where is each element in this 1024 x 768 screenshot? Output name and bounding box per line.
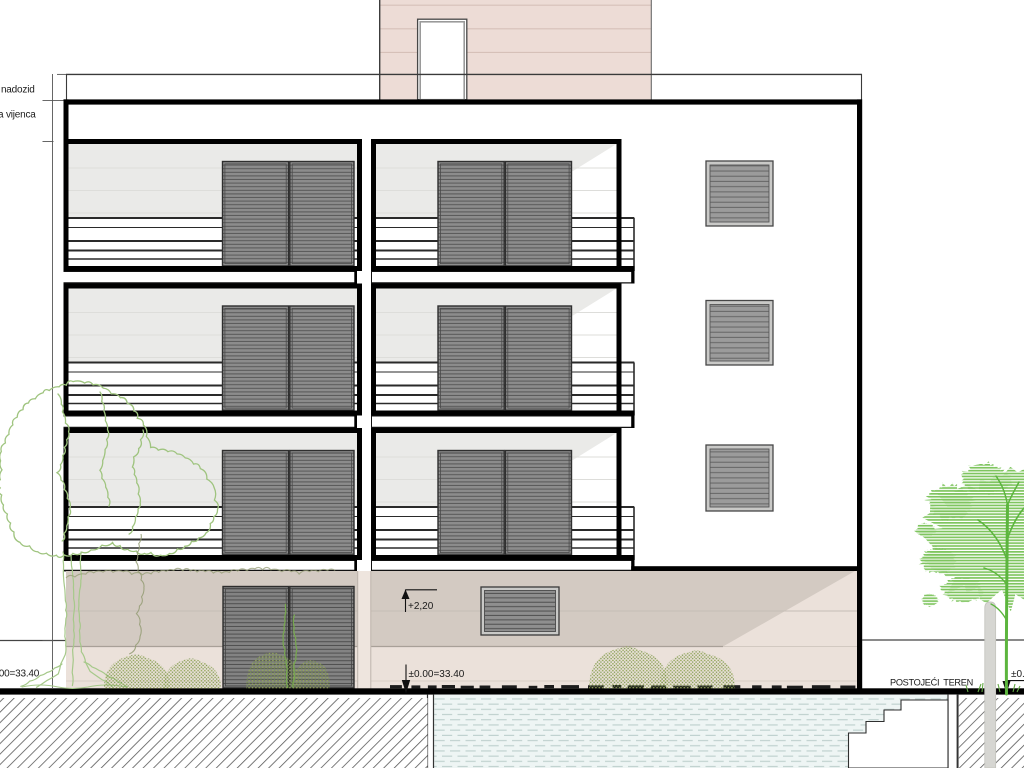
svg-text:visina vijenca: visina vijenca [0,110,36,121]
svg-text:POSTOJEĆI TEREN: POSTOJEĆI TEREN [890,678,973,688]
svg-text:±0.00=33.40: ±0.00=33.40 [409,669,465,680]
svg-text:visina nadozid: visina nadozid [0,85,35,96]
svg-text:+2,20: +2,20 [408,601,434,612]
svg-text:±0.0: ±0.0 [1011,669,1024,680]
svg-text:±0.00=33.40: ±0.00=33.40 [0,669,40,680]
